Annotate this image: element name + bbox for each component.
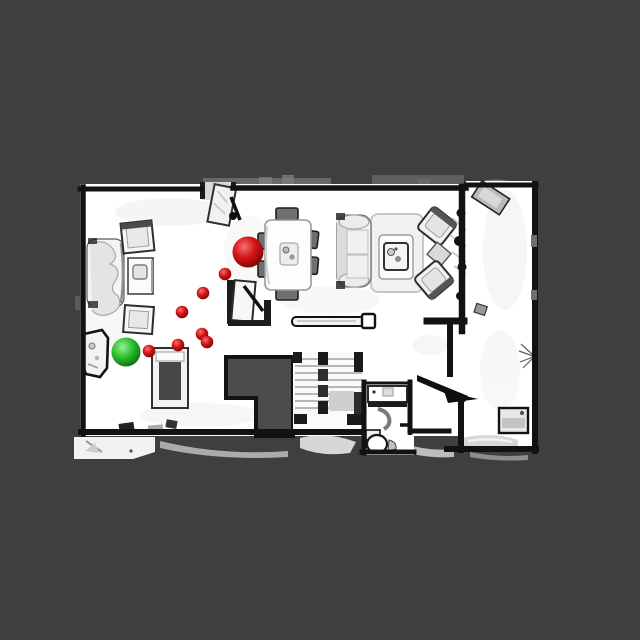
right-coffee-table xyxy=(379,235,413,279)
left-coffee-table xyxy=(128,258,153,294)
start-marker[interactable] xyxy=(112,338,141,367)
tray xyxy=(384,243,408,270)
table-centerpiece xyxy=(280,243,298,265)
left-armchair-bottom xyxy=(123,305,154,334)
path-waypoint xyxy=(172,339,185,352)
path-waypoint xyxy=(219,268,232,281)
path-waypoint xyxy=(197,287,210,300)
right-sofa xyxy=(336,213,371,289)
path-waypoint xyxy=(143,345,156,358)
counter-item xyxy=(383,388,393,396)
goal-marker[interactable] xyxy=(233,237,264,268)
left-sofa xyxy=(87,238,124,315)
path-waypoint xyxy=(176,306,189,319)
left-armchair-top xyxy=(121,220,155,253)
hall-side-table xyxy=(82,330,108,377)
path-waypoint xyxy=(201,336,214,349)
lounge-chair xyxy=(152,348,188,408)
dining-table xyxy=(265,220,311,290)
scan-viewport[interactable] xyxy=(0,0,640,640)
floor-board xyxy=(292,314,375,328)
floor-plan xyxy=(80,181,538,455)
entry-bench xyxy=(499,408,528,433)
staircase xyxy=(293,352,363,432)
faucet xyxy=(372,390,375,393)
